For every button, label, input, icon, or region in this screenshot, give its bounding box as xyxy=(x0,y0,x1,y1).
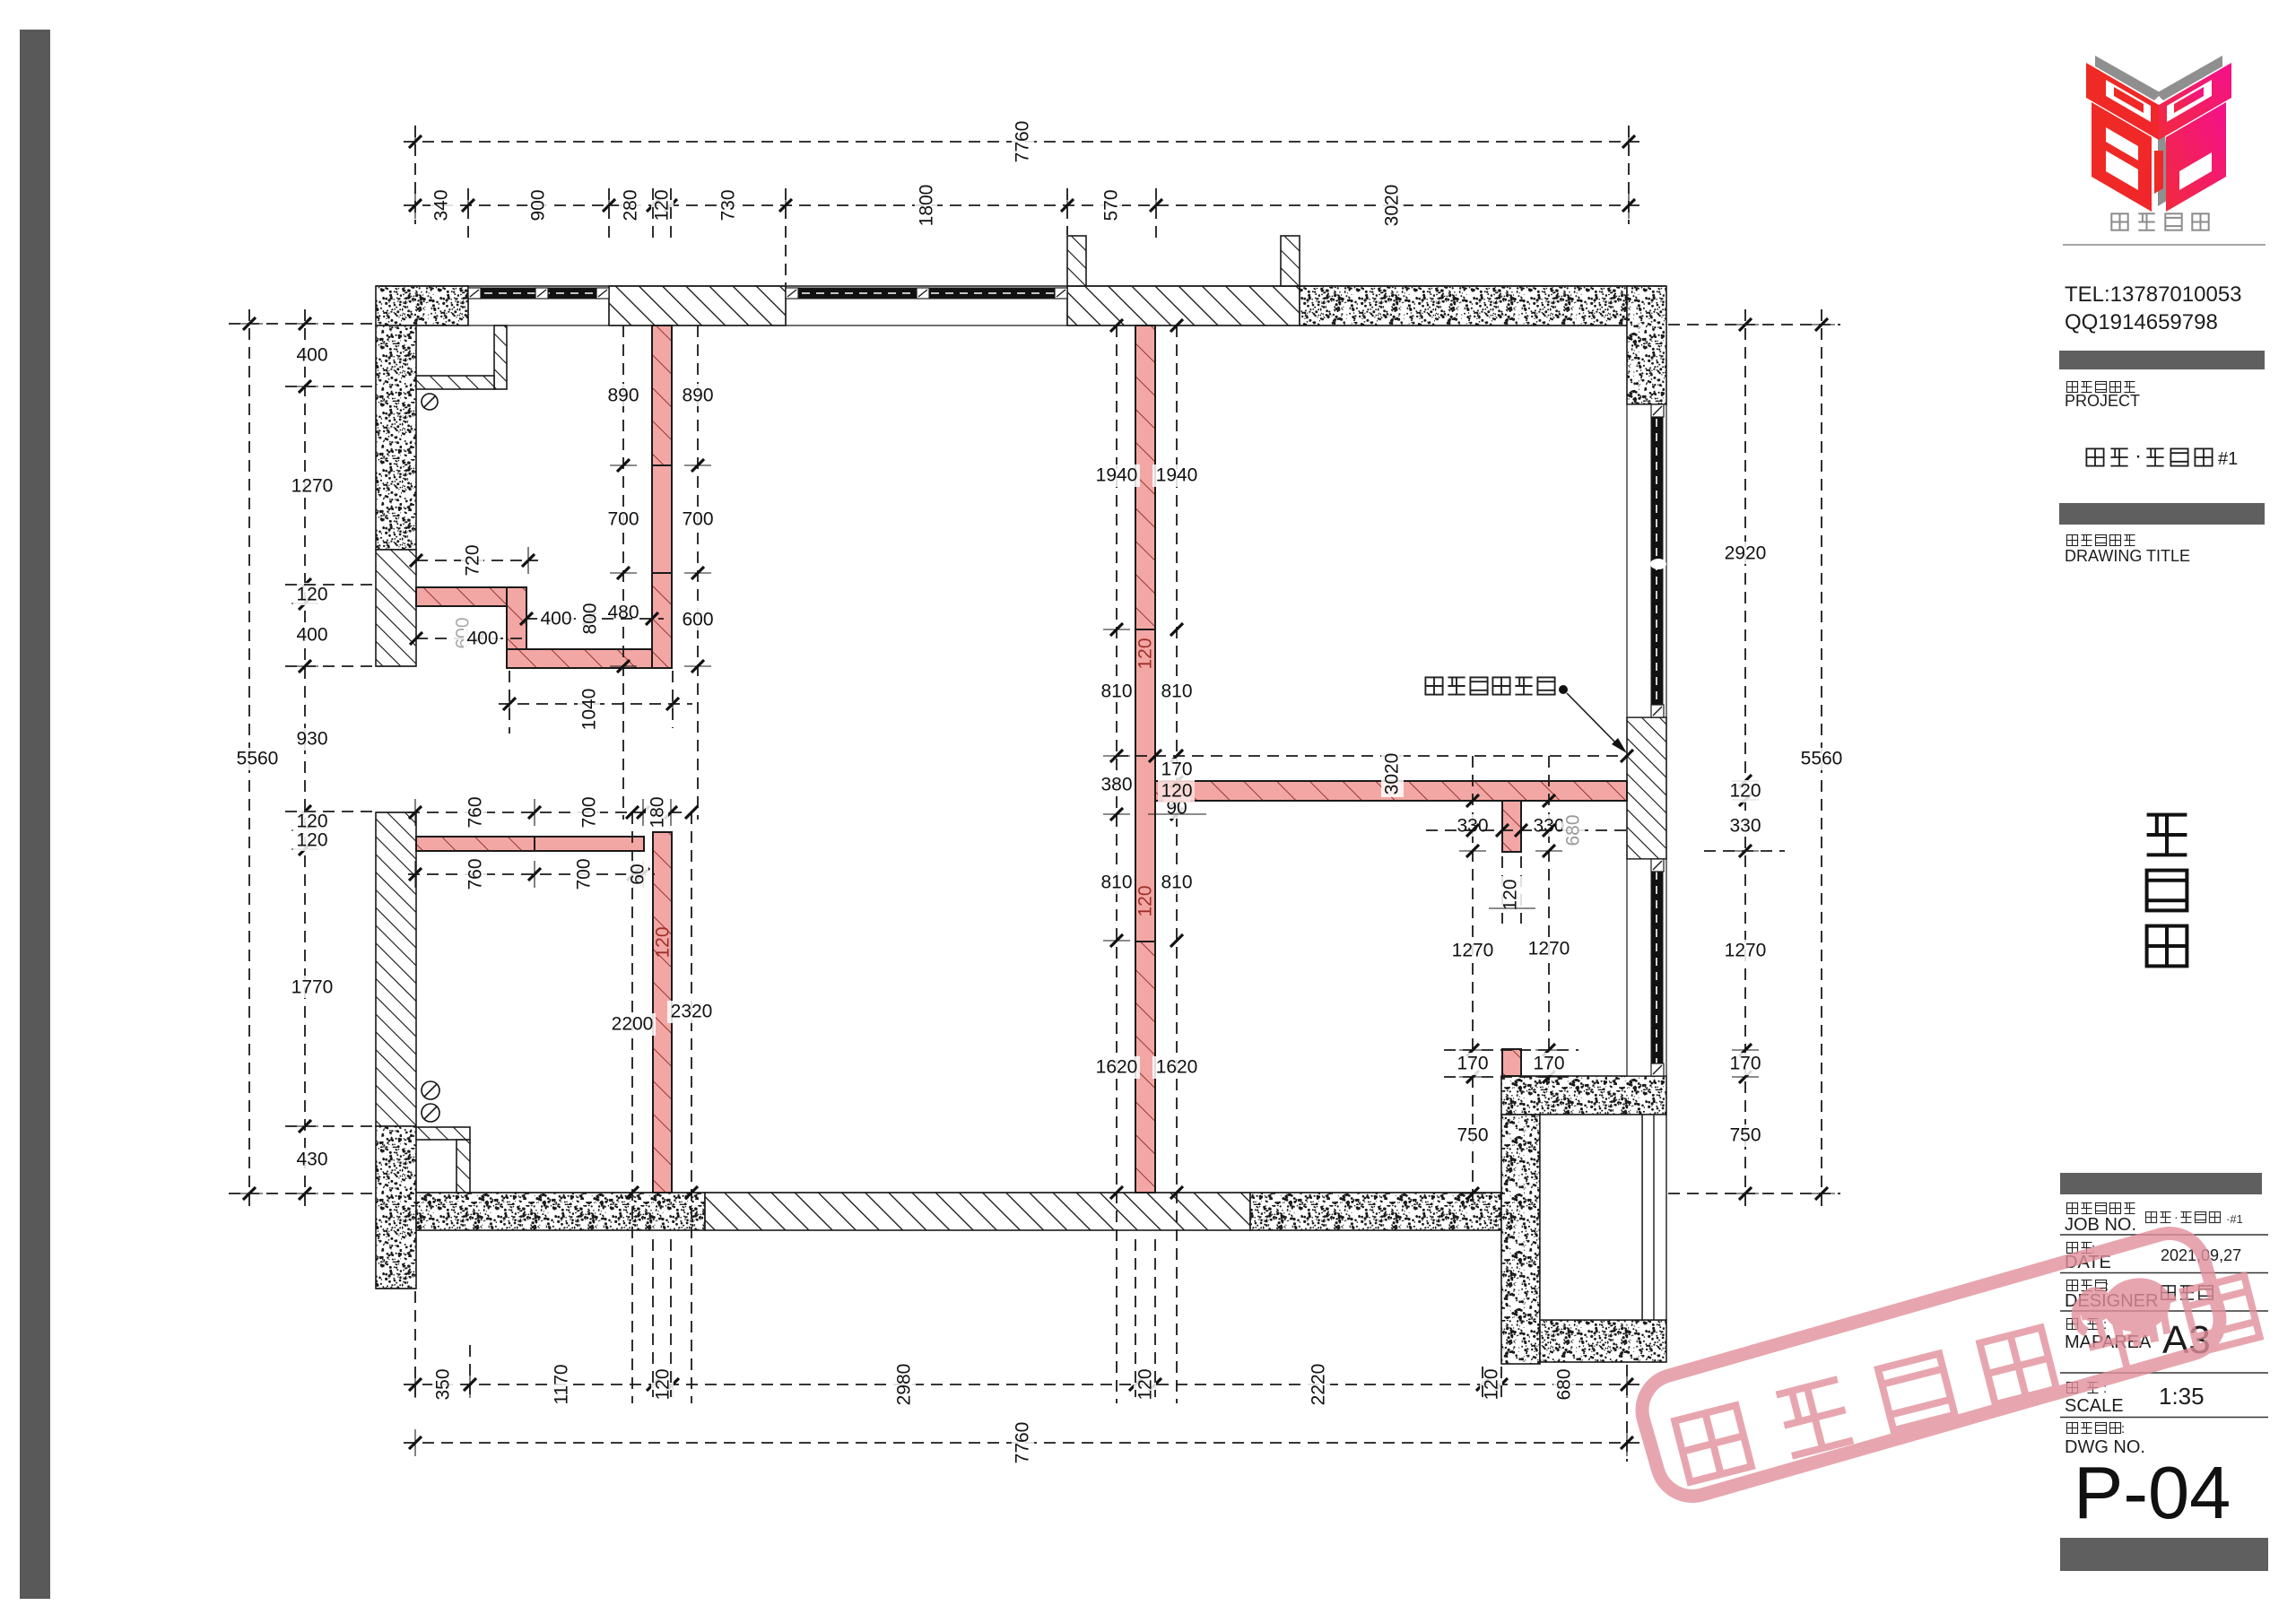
svg-text:1170: 1170 xyxy=(552,1364,572,1404)
svg-text:120: 120 xyxy=(1161,781,1192,802)
svg-text:810: 810 xyxy=(1161,681,1192,702)
svg-text:7760: 7760 xyxy=(1013,121,1033,163)
svg-text:1040: 1040 xyxy=(579,689,600,731)
svg-text:1270: 1270 xyxy=(1452,941,1494,961)
svg-text:1620: 1620 xyxy=(1096,1057,1138,1078)
svg-text:760: 760 xyxy=(465,796,486,828)
svg-text:170: 170 xyxy=(1533,1054,1564,1074)
svg-text:QQ1914659798: QQ1914659798 xyxy=(2065,310,2218,334)
svg-text:1940: 1940 xyxy=(1096,465,1138,486)
svg-text:750: 750 xyxy=(1457,1125,1488,1146)
svg-text:DRAWING TITLE: DRAWING TITLE xyxy=(2065,547,2190,565)
svg-text:1270: 1270 xyxy=(1528,939,1570,959)
svg-text:340: 340 xyxy=(431,189,452,221)
svg-text:400: 400 xyxy=(296,345,327,366)
svg-text:700: 700 xyxy=(682,509,713,530)
svg-text:5560: 5560 xyxy=(1801,749,1843,769)
svg-text:330: 330 xyxy=(1457,816,1488,837)
svg-text:120: 120 xyxy=(1135,1368,1156,1400)
svg-text:600: 600 xyxy=(682,610,713,630)
svg-text:430: 430 xyxy=(296,1150,327,1170)
svg-text:170: 170 xyxy=(1161,759,1192,780)
svg-text:350: 350 xyxy=(433,1368,454,1400)
svg-text:1270: 1270 xyxy=(1725,941,1767,961)
svg-text:180: 180 xyxy=(648,796,668,828)
svg-text:810: 810 xyxy=(1100,872,1132,893)
svg-text:3020: 3020 xyxy=(1382,185,1403,227)
svg-text:680: 680 xyxy=(1563,814,1584,846)
svg-text:2980: 2980 xyxy=(894,1364,915,1406)
svg-text::: : xyxy=(2121,1421,2125,1436)
svg-text:400: 400 xyxy=(296,625,327,646)
svg-text:330: 330 xyxy=(1533,816,1564,837)
svg-text:TEL:13787010053: TEL:13787010053 xyxy=(2065,282,2242,307)
svg-text:280: 280 xyxy=(621,189,641,221)
svg-text:120: 120 xyxy=(1729,781,1761,802)
svg-text:400: 400 xyxy=(540,609,571,629)
svg-text:700: 700 xyxy=(607,509,639,530)
svg-text:#1: #1 xyxy=(2218,449,2238,469)
svg-text:JOB NO.: JOB NO. xyxy=(2065,1215,2136,1235)
svg-text:400: 400 xyxy=(466,629,498,649)
svg-text:3020: 3020 xyxy=(1382,753,1403,795)
svg-text:2200: 2200 xyxy=(612,1014,654,1035)
svg-text:120: 120 xyxy=(296,830,327,851)
svg-text:2320: 2320 xyxy=(671,1002,713,1022)
svg-text:890: 890 xyxy=(607,386,639,406)
svg-text:120: 120 xyxy=(653,926,674,958)
svg-text:5560: 5560 xyxy=(237,749,279,769)
svg-text:120: 120 xyxy=(652,189,673,221)
svg-text:120: 120 xyxy=(296,585,327,605)
svg-text:480: 480 xyxy=(607,603,639,623)
svg-text:1:35: 1:35 xyxy=(2159,1383,2205,1410)
svg-text:·: · xyxy=(2135,444,2142,468)
svg-text:680: 680 xyxy=(1554,1368,1575,1400)
svg-text:2920: 2920 xyxy=(1725,543,1767,564)
svg-text:120: 120 xyxy=(1500,879,1521,910)
svg-text:170: 170 xyxy=(1729,1054,1761,1074)
svg-text:·#1: ·#1 xyxy=(2226,1212,2243,1226)
svg-text:SCALE: SCALE xyxy=(2065,1396,2124,1416)
svg-text:570: 570 xyxy=(1101,189,1122,221)
svg-text:120: 120 xyxy=(1135,885,1156,916)
svg-text:380: 380 xyxy=(1100,775,1132,795)
svg-text:1620: 1620 xyxy=(1156,1057,1198,1078)
svg-text:1270: 1270 xyxy=(291,476,334,497)
svg-text:·: · xyxy=(2174,1210,2179,1224)
svg-text:120: 120 xyxy=(1135,638,1156,669)
svg-text:700: 700 xyxy=(574,858,595,890)
svg-text:750: 750 xyxy=(1729,1125,1761,1146)
svg-text:730: 730 xyxy=(718,189,739,221)
svg-text:890: 890 xyxy=(682,386,713,406)
svg-text:7760: 7760 xyxy=(1013,1422,1033,1464)
svg-text:1800: 1800 xyxy=(917,185,937,227)
svg-text:700: 700 xyxy=(579,796,600,828)
svg-text:1940: 1940 xyxy=(1156,465,1198,486)
svg-text:810: 810 xyxy=(1100,681,1132,702)
svg-text:930: 930 xyxy=(296,729,327,750)
svg-text:PROJECT: PROJECT xyxy=(2065,392,2140,410)
svg-text:800: 800 xyxy=(580,603,601,634)
svg-text:720: 720 xyxy=(463,544,483,576)
svg-text:1770: 1770 xyxy=(291,977,334,998)
svg-text:2220: 2220 xyxy=(1309,1364,1329,1406)
svg-text:60: 60 xyxy=(628,864,648,884)
svg-text:900: 900 xyxy=(528,189,549,221)
svg-text:120: 120 xyxy=(653,1368,674,1400)
svg-text:P-04: P-04 xyxy=(2074,1451,2231,1534)
svg-text:330: 330 xyxy=(1729,816,1761,837)
svg-text:170: 170 xyxy=(1457,1054,1488,1074)
svg-text:120: 120 xyxy=(1482,1368,1502,1400)
svg-text:810: 810 xyxy=(1161,872,1192,893)
svg-text:760: 760 xyxy=(465,858,486,890)
